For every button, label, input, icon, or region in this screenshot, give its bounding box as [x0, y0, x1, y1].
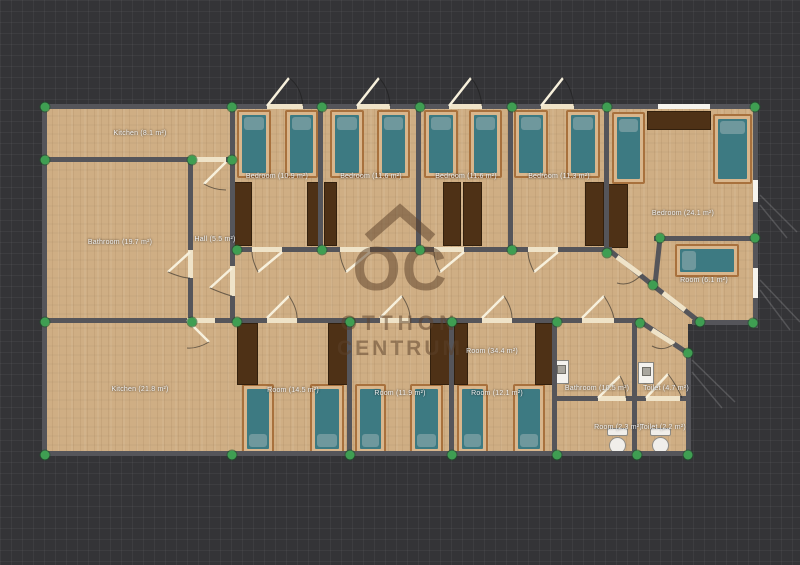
door-opening	[340, 247, 370, 252]
room-label-bedroom-2: Bedroom (11.6 m²)	[340, 173, 402, 181]
bed-icon	[377, 110, 410, 178]
vertex-handle[interactable]	[649, 281, 658, 290]
bed-pillow	[476, 117, 495, 130]
room-label-room-tiny: Room (2.3 m²)	[594, 424, 642, 432]
door-opening	[582, 318, 614, 323]
wall	[604, 104, 609, 252]
room-label-hall: Hall (5.5 m²)	[194, 236, 235, 244]
vertex-handle[interactable]	[636, 319, 645, 328]
room-label-toilet-1: Toilet (4.7 m²)	[643, 385, 689, 393]
bed-icon	[424, 110, 458, 178]
window	[658, 104, 710, 109]
room-label-corridor: Room (34.4 m²)	[466, 348, 518, 356]
wall	[42, 104, 758, 109]
wardrobe-icon	[328, 323, 348, 385]
vertex-handle[interactable]	[228, 103, 237, 112]
vertex-handle[interactable]	[508, 246, 517, 255]
vertex-handle[interactable]	[318, 246, 327, 255]
room-label-room-b1: Room (14.5 m²)	[267, 387, 319, 395]
wall	[188, 157, 193, 322]
vertex-handle[interactable]	[448, 318, 457, 327]
bed-pillow	[720, 121, 745, 134]
sink-icon	[638, 362, 654, 384]
bed-icon	[285, 110, 318, 178]
bed-pillow	[292, 117, 311, 130]
vertex-handle[interactable]	[188, 318, 197, 327]
vertex-handle[interactable]	[553, 451, 562, 460]
bed-mattress	[462, 389, 483, 449]
bed-pillow	[317, 434, 337, 447]
bed-pillow	[384, 117, 403, 130]
wardrobe-icon	[443, 182, 461, 246]
door-opening	[230, 266, 235, 296]
vertex-handle[interactable]	[553, 318, 562, 327]
door-opening	[598, 396, 626, 401]
vertex-handle[interactable]	[416, 246, 425, 255]
room-label-room-b3: Room (12.1 m²)	[471, 390, 523, 398]
wardrobe-icon	[237, 323, 258, 385]
bed-pillow	[521, 117, 541, 130]
room-label-kitchen-top: Kitchen (8.1 m²)	[114, 130, 167, 138]
vertex-handle[interactable]	[603, 103, 612, 112]
sink-basin	[557, 365, 566, 374]
vertex-handle[interactable]	[656, 234, 665, 243]
vertex-handle[interactable]	[41, 103, 50, 112]
wardrobe-icon	[233, 182, 252, 246]
vertex-handle[interactable]	[684, 349, 693, 358]
bed-pillow	[337, 117, 357, 130]
room-label-bedroom-1: Bedroom (10.9 m²)	[246, 173, 308, 181]
wall	[552, 318, 557, 456]
bed-icon	[612, 112, 645, 184]
bed-mattress	[382, 115, 405, 173]
room-label-bathroom-main: Bathroom (19.7 m²)	[88, 239, 152, 247]
bed-mattress	[415, 389, 438, 449]
wardrobe-icon	[585, 182, 604, 246]
vertex-handle[interactable]	[228, 156, 237, 165]
bed-mattress	[315, 389, 339, 449]
bed-mattress	[429, 115, 453, 173]
vertex-handle[interactable]	[416, 103, 425, 112]
sink-basin	[642, 367, 651, 376]
bed-icon	[713, 114, 752, 184]
bed-pillow	[573, 117, 593, 130]
vertex-handle[interactable]	[751, 103, 760, 112]
wall	[632, 318, 637, 456]
wall	[347, 318, 352, 456]
door-opening	[646, 396, 680, 401]
bed-mattress	[335, 115, 359, 173]
room-label-bedroom-4: Bedroom (11.3 m²)	[528, 173, 590, 181]
vertex-handle[interactable]	[41, 156, 50, 165]
vertex-handle[interactable]	[228, 451, 237, 460]
wall	[508, 104, 513, 252]
vertex-handle[interactable]	[41, 318, 50, 327]
vertex-handle[interactable]	[346, 451, 355, 460]
vertex-handle[interactable]	[318, 103, 327, 112]
room-label-kitchen-2: Kitchen (21.8 m²)	[111, 386, 168, 394]
bed-pillow	[464, 434, 481, 447]
vertex-handle[interactable]	[448, 451, 457, 460]
vertex-handle[interactable]	[696, 318, 705, 327]
vertex-handle[interactable]	[346, 318, 355, 327]
wall	[686, 350, 691, 456]
wardrobe-icon	[647, 111, 711, 130]
wall	[416, 104, 421, 252]
bed-pillow	[417, 434, 436, 447]
wall	[318, 104, 323, 252]
bed-mattress	[571, 115, 595, 173]
bed-mattress	[247, 389, 269, 449]
room-label-toilet-2: Toilet (2.2 m²)	[640, 424, 686, 432]
room-label-bedroom-big: Bedroom (24.1 m²)	[652, 210, 714, 218]
vertex-handle[interactable]	[233, 318, 242, 327]
floor-plan-canvas[interactable]: OC OTTHON CENTRUM Kitchen (8.1 m²)Bathro…	[0, 0, 800, 565]
wardrobe-icon	[608, 184, 628, 248]
bed-mattress	[290, 115, 313, 173]
bed-pillow	[520, 434, 538, 447]
bed-icon	[566, 110, 600, 178]
door-opening	[267, 318, 297, 323]
vertex-handle[interactable]	[751, 234, 760, 243]
vertex-handle[interactable]	[603, 249, 612, 258]
bed-icon	[514, 110, 548, 178]
bed-icon	[675, 244, 739, 277]
door-opening	[380, 318, 410, 323]
bed-pillow	[362, 434, 379, 447]
bed-mattress	[518, 389, 540, 449]
bed-mattress	[519, 115, 543, 173]
vertex-handle[interactable]	[633, 451, 642, 460]
bed-pillow	[619, 119, 638, 132]
vertex-handle[interactable]	[684, 451, 693, 460]
room-label-room-b2: Room (11.9 m²)	[374, 390, 425, 398]
door-opening	[252, 247, 282, 252]
bed-mattress	[474, 115, 497, 173]
vertex-handle[interactable]	[41, 451, 50, 460]
vertex-handle[interactable]	[508, 103, 517, 112]
wardrobe-icon	[463, 182, 482, 246]
bed-pillow	[431, 117, 451, 130]
bed-mattress	[617, 117, 640, 179]
vertex-handle[interactable]	[233, 246, 242, 255]
room-label-room-small: Room (6.1 m²)	[680, 277, 728, 285]
bed-pillow	[244, 117, 264, 130]
door-opening	[434, 247, 464, 252]
door-opening	[267, 104, 303, 109]
bed-mattress	[680, 249, 734, 272]
bed-mattress	[360, 389, 381, 449]
bed-mattress	[242, 115, 266, 173]
vertex-handle[interactable]	[188, 156, 197, 165]
door-opening	[194, 157, 226, 162]
door-opening	[449, 104, 482, 109]
vertex-handle[interactable]	[749, 319, 758, 328]
wardrobe-icon	[324, 182, 337, 246]
bed-mattress	[718, 119, 747, 179]
wardrobe-icon	[430, 323, 450, 385]
room-label-bedroom-3: Bedroom (11.6 m²)	[435, 173, 497, 181]
window	[753, 180, 758, 202]
wall	[449, 318, 454, 456]
bed-pillow	[682, 251, 696, 270]
wall	[42, 451, 692, 456]
wall	[654, 236, 758, 241]
room-label-bathroom-2: Bathroom (10.5 m²)	[565, 385, 629, 393]
door-opening	[541, 104, 574, 109]
door-opening	[482, 318, 512, 323]
door-opening	[528, 247, 558, 252]
window	[753, 268, 758, 298]
bed-icon	[469, 110, 502, 178]
bed-icon	[237, 110, 271, 178]
bed-icon	[330, 110, 364, 178]
door-opening	[357, 104, 390, 109]
door-opening	[188, 250, 193, 278]
bed-pillow	[249, 434, 267, 447]
